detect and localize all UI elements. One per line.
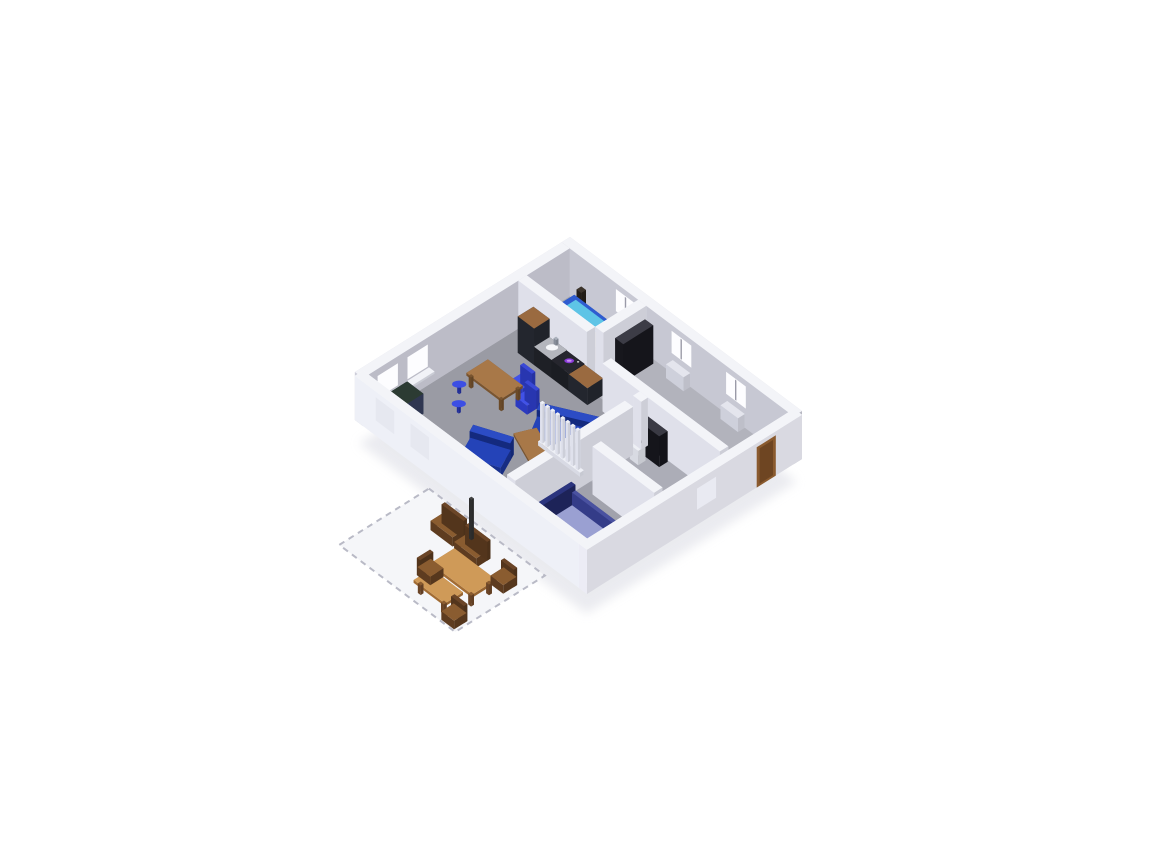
floorplan-3d-render — [0, 0, 1152, 864]
slat-screen-2 — [545, 405, 550, 448]
stool-2-top — [452, 400, 466, 407]
window-north-3-mullion — [735, 380, 736, 401]
slat-screen-6 — [566, 420, 571, 463]
slat-screen-4 — [555, 412, 560, 455]
slat-screen-5 — [560, 416, 565, 459]
dining-table-leg-3 — [516, 386, 521, 400]
window-north-2-mullion — [681, 339, 682, 360]
dining-table-leg-2 — [499, 397, 504, 411]
wall-hall-stub — [633, 391, 648, 449]
stove-burner-core — [567, 360, 572, 362]
slat-screen-7 — [571, 424, 576, 467]
slat-screen-3 — [550, 409, 555, 452]
stove-knob — [577, 361, 579, 362]
terrace-post — [469, 497, 474, 541]
screenshot-root — [0, 0, 1152, 864]
kitchen-faucet — [554, 337, 559, 346]
terrace-table-leg-2 — [468, 592, 474, 607]
slat-screen-8 — [576, 428, 581, 471]
terrace-low-table-leg-1 — [418, 582, 424, 596]
viewport-3d[interactable] — [0, 0, 1152, 864]
dining-table-leg-1 — [469, 374, 474, 388]
slat-screen-1 — [540, 401, 545, 444]
stool-1-top — [452, 381, 466, 388]
